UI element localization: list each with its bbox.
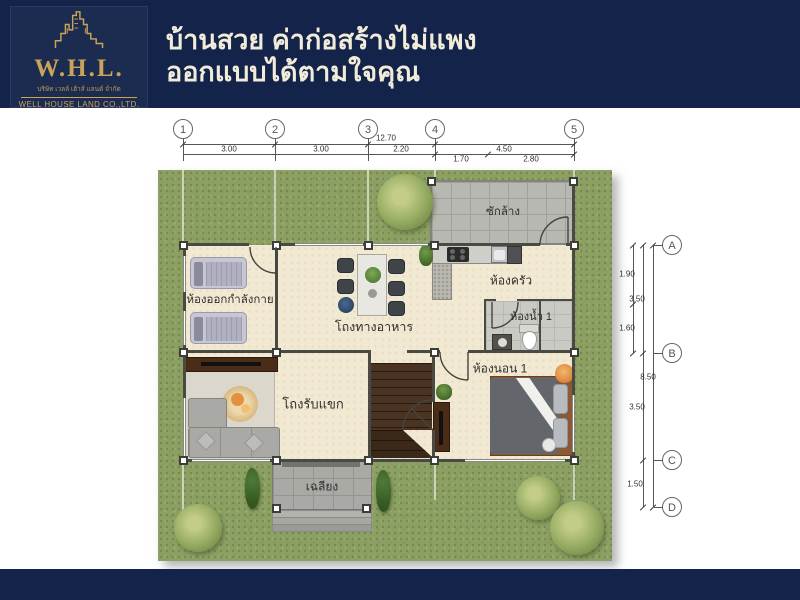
dimension-label: 3.50 — [629, 295, 645, 304]
dining-table — [357, 254, 387, 316]
pouf — [542, 438, 556, 452]
column — [362, 504, 371, 513]
column — [570, 348, 579, 357]
title-line-1: บ้านสวย ค่าก่อสร้างไม่แพง — [166, 24, 477, 56]
treadmill — [190, 312, 247, 344]
grid-stem — [654, 507, 663, 508]
dimension-total-label: 12.70 — [376, 134, 396, 143]
window — [183, 398, 186, 456]
tv-console — [184, 357, 278, 372]
column — [364, 456, 373, 465]
kitchen-counter-side — [432, 263, 452, 300]
grid-stem — [654, 245, 663, 246]
column — [364, 241, 373, 250]
logo-abbreviation: W.H.L. — [11, 55, 147, 83]
column — [179, 241, 188, 250]
column — [179, 348, 188, 357]
dimension-tick — [640, 504, 646, 510]
column — [272, 348, 281, 357]
grid-extension-line — [573, 460, 575, 500]
dimension-label: 3.00 — [221, 145, 237, 154]
footer-band — [0, 569, 800, 600]
room-label-kitchen: ห้องครัว — [490, 272, 532, 291]
column — [430, 456, 439, 465]
stove-burner — [450, 249, 455, 254]
grid-column-circle-1: 1 — [173, 119, 193, 139]
sofa-pillow — [196, 431, 216, 451]
wall-segment — [275, 243, 278, 353]
column — [570, 456, 579, 465]
dimension-label: 3.00 — [313, 145, 329, 154]
shrub — [245, 468, 260, 509]
dimension-label: 4.50 — [496, 145, 512, 154]
round-rug — [222, 386, 258, 422]
grid-stem — [654, 460, 663, 461]
sofa-pillow — [244, 433, 264, 453]
column — [570, 241, 579, 250]
column — [427, 177, 436, 186]
bathroom-sink-counter — [492, 334, 512, 350]
wall-segment — [432, 353, 435, 402]
column — [569, 177, 578, 186]
grid-column-circle-5: 5 — [564, 119, 584, 139]
dimension-total-label: 8.50 — [640, 373, 656, 382]
dimension-tick — [630, 350, 636, 356]
dimension-label: 1.70 — [453, 155, 469, 164]
shrub — [376, 470, 391, 512]
logo-company-name-english: WELL HOUSE LAND CO.,LTD. — [11, 100, 147, 109]
window — [372, 243, 428, 246]
wall-segment — [484, 350, 575, 352]
kitchen-cabinet — [507, 246, 522, 264]
grid-row-circle-a: A — [662, 235, 682, 255]
grid-row-circle-c: C — [662, 450, 682, 470]
sink-basin — [498, 338, 507, 347]
kitchen-sink — [491, 246, 508, 263]
pillow — [553, 384, 568, 414]
tree — [550, 501, 604, 555]
tree — [377, 174, 433, 230]
sofa — [188, 427, 280, 458]
stove-burner — [460, 255, 465, 260]
grid-stem — [654, 353, 663, 354]
room-label-bathroom-1: ห้องน้ำ 1 — [510, 307, 552, 325]
treadmill-console — [194, 317, 203, 341]
staircase — [370, 363, 432, 430]
window — [465, 459, 565, 462]
grid-row-circle-d: D — [662, 497, 682, 517]
room-label-laundry: ซักล้าง — [486, 203, 520, 221]
grid-column-circle-2: 2 — [265, 119, 285, 139]
column — [272, 456, 281, 465]
treadmill-belt — [206, 262, 242, 286]
rug-cushion — [241, 404, 250, 413]
tv-screen — [439, 411, 443, 445]
tree — [174, 504, 222, 552]
column — [430, 241, 439, 250]
wall-segment — [517, 299, 575, 301]
dining-chair — [388, 259, 405, 274]
stove-burner — [460, 249, 465, 254]
dimension-label: 1.90 — [619, 270, 635, 279]
dimension-label: 2.20 — [393, 145, 409, 154]
dimension-line — [183, 154, 574, 155]
window — [572, 395, 575, 452]
tv-screen — [201, 362, 261, 366]
dining-stool — [338, 297, 354, 313]
treadmill-belt — [206, 317, 242, 341]
table-plant — [365, 267, 381, 283]
column — [272, 504, 281, 513]
dimension-label: 3.50 — [629, 403, 645, 412]
wall-segment — [484, 299, 486, 352]
porch-beam — [282, 462, 360, 467]
logo-company-name-thai: บริษัท เวลล์ เฮ้าส์ แลนด์ จำกัด — [11, 84, 147, 94]
wall-segment — [368, 350, 371, 462]
logo-divider — [21, 97, 137, 98]
dining-chair — [337, 258, 354, 273]
dining-chair — [337, 279, 354, 294]
room-label-porch: เฉลียง — [306, 478, 339, 497]
grid-extension-line — [367, 170, 369, 243]
window — [183, 311, 186, 345]
window — [295, 243, 363, 246]
room-label-exercise-room: ห้องออกกำลังกาย — [186, 291, 273, 309]
table-plate — [368, 289, 377, 298]
grid-row-circle-b: B — [662, 343, 682, 363]
window — [183, 256, 186, 292]
building-skyline-icon — [47, 10, 111, 48]
column — [272, 241, 281, 250]
tv-console — [433, 402, 450, 452]
room-label-living-hall: โถงรับแขก — [282, 394, 344, 415]
sink-basin — [494, 250, 505, 260]
sofa-chaise — [188, 398, 227, 429]
dining-chair — [388, 301, 405, 316]
dimension-label: 1.60 — [619, 324, 635, 333]
dimension-label: 1.50 — [627, 480, 643, 489]
stove-burner — [450, 255, 455, 260]
window — [192, 459, 270, 462]
dimension-label: 2.80 — [523, 155, 539, 164]
grid-extension-line — [274, 170, 276, 243]
treadmill-console — [194, 262, 203, 286]
treadmill — [190, 257, 247, 289]
room-label-bedroom-1: ห้องนอน 1 — [473, 360, 528, 379]
grid-extension-line — [434, 460, 436, 500]
wall-segment — [183, 243, 249, 246]
slide-title: บ้านสวย ค่าก่อสร้างไม่แพง ออกแบบได้ตามใจ… — [166, 24, 477, 88]
slide: บ้านสวย ค่าก่อสร้างไม่แพง ออกแบบได้ตามใจ… — [0, 0, 800, 600]
potted-plant — [436, 384, 452, 400]
room-label-dining-hall: โถงทางอาหาร — [335, 317, 413, 337]
wall-segment — [430, 243, 540, 246]
company-logo: W.H.L. บริษัท เวลล์ เฮ้าส์ แลนด์ จำกัด W… — [10, 6, 148, 108]
column — [179, 456, 188, 465]
dimension-line — [183, 144, 574, 145]
grid-extension-line — [182, 170, 184, 243]
porch-step — [272, 524, 372, 532]
stove-cooktop — [447, 247, 469, 262]
grid-column-circle-4: 4 — [425, 119, 445, 139]
title-line-2: ออกแบบได้ตามใจคุณ — [166, 56, 477, 88]
column — [430, 348, 439, 357]
dining-chair — [388, 281, 405, 296]
